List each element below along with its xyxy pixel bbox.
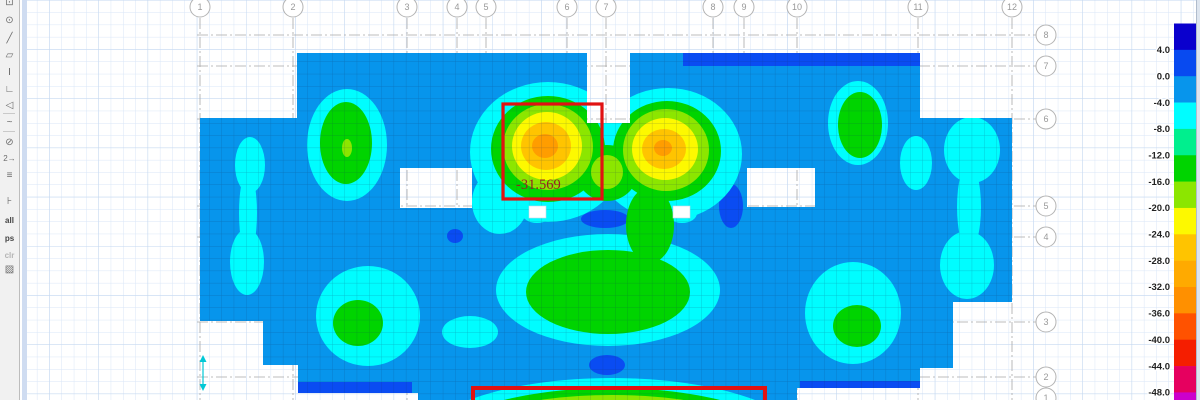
grid-bubble-label: 7 [603, 2, 608, 12]
legend-swatch [1174, 24, 1196, 51]
legend-label: -28.0 [1148, 256, 1170, 267]
legend-label: -8.0 [1154, 124, 1170, 135]
grid-bubble-label: 1 [1043, 393, 1048, 400]
legend-label: -44.0 [1148, 361, 1170, 372]
legend-swatch [1174, 103, 1196, 130]
grid-bubble-label: 4 [1043, 232, 1048, 242]
grid-bubble-label: 6 [1043, 114, 1048, 124]
grid-bubble-label: 5 [1043, 201, 1048, 211]
legend-label: -16.0 [1148, 177, 1170, 188]
legend-label: -4.0 [1154, 98, 1170, 109]
tool-circle-dimension[interactable]: ⊘ [0, 136, 19, 151]
grid-bubble-label: 1 [197, 2, 202, 12]
grid-bubble-label: 8 [710, 2, 715, 12]
sep-1 [3, 113, 15, 114]
left-toolbar: ⊡⊙╱▱I∟◁~⊘2→≡⊦allpsclr▨ [0, 0, 20, 400]
tool-select-box[interactable]: ⊡ [0, 0, 19, 11]
app-window: ⊡⊙╱▱I∟◁~⊘2→≡⊦allpsclr▨ 12345678910111287… [0, 0, 1200, 400]
sep-2 [3, 131, 15, 132]
legend-label: -36.0 [1148, 309, 1170, 320]
tool-surface[interactable]: ▱ [0, 49, 19, 64]
deflection-value-label: -31.569 [516, 177, 561, 193]
legend-swatch [1174, 234, 1196, 261]
grid-bubble-label: 2 [1043, 372, 1048, 382]
grid-bubble-label: 5 [483, 2, 488, 12]
tool-show-all[interactable]: all [0, 214, 19, 229]
grid-bubble-label: 9 [741, 2, 746, 12]
legend-label: 0.0 [1157, 71, 1170, 82]
tool-show-clr[interactable]: clr [0, 249, 19, 264]
legend-swatch [1174, 76, 1196, 103]
tool-layers[interactable]: ≡ [0, 169, 19, 184]
legend-swatch [1174, 208, 1196, 235]
grid-bubble-label: 7 [1043, 61, 1048, 71]
tool-dimension[interactable]: 2→ [0, 152, 19, 167]
grid-bubble-label: 3 [1043, 317, 1048, 327]
legend-swatch [1174, 261, 1196, 288]
grid-bubble-label: 12 [1007, 2, 1017, 12]
legend-swatch [1174, 392, 1196, 400]
tool-hatch[interactable]: ▨ [0, 263, 19, 278]
grid-bubble-label: 2 [290, 2, 295, 12]
legend-swatch [1174, 340, 1196, 367]
legend-swatch [1174, 129, 1196, 156]
legend-swatch [1174, 366, 1196, 393]
column-node [529, 206, 546, 218]
contour-canvas[interactable]: 12345678910111287654321 -31.569 4.00.0-4… [0, 0, 1200, 400]
legend-swatch [1174, 182, 1196, 209]
grid-bubble-label: 11 [913, 2, 922, 12]
grid-bubble-label: 10 [792, 2, 802, 12]
grid-bubble-label: 4 [454, 2, 459, 12]
legend-swatch [1174, 313, 1196, 340]
grid-bubble-label: 8 [1043, 30, 1048, 40]
grid-bubble-label: 6 [564, 2, 569, 12]
tool-flag-dimension[interactable]: ⊦ [0, 195, 19, 210]
legend-label: -20.0 [1148, 203, 1170, 214]
tool-cone[interactable]: ◁ [0, 99, 19, 114]
column-node [673, 206, 690, 218]
tool-column[interactable]: I [0, 66, 19, 81]
legend-label: -24.0 [1148, 230, 1170, 241]
legend-swatch [1174, 50, 1196, 77]
tool-line[interactable]: ╱ [0, 32, 19, 47]
legend-label: -12.0 [1148, 150, 1170, 161]
grid-bubble-label: 3 [404, 2, 409, 12]
legend-swatch [1174, 287, 1196, 314]
tool-polyline[interactable]: ∟ [0, 83, 19, 98]
tool-spline[interactable]: ~ [0, 116, 19, 131]
legend-label: -48.0 [1148, 388, 1170, 399]
tool-show-ps[interactable]: ps [0, 232, 19, 247]
tool-render-view[interactable]: ⊙ [0, 14, 19, 29]
legend-label: -32.0 [1148, 282, 1170, 293]
legend-swatch [1174, 155, 1196, 182]
legend-label: -40.0 [1148, 335, 1170, 346]
legend-label: 4.0 [1157, 45, 1170, 56]
